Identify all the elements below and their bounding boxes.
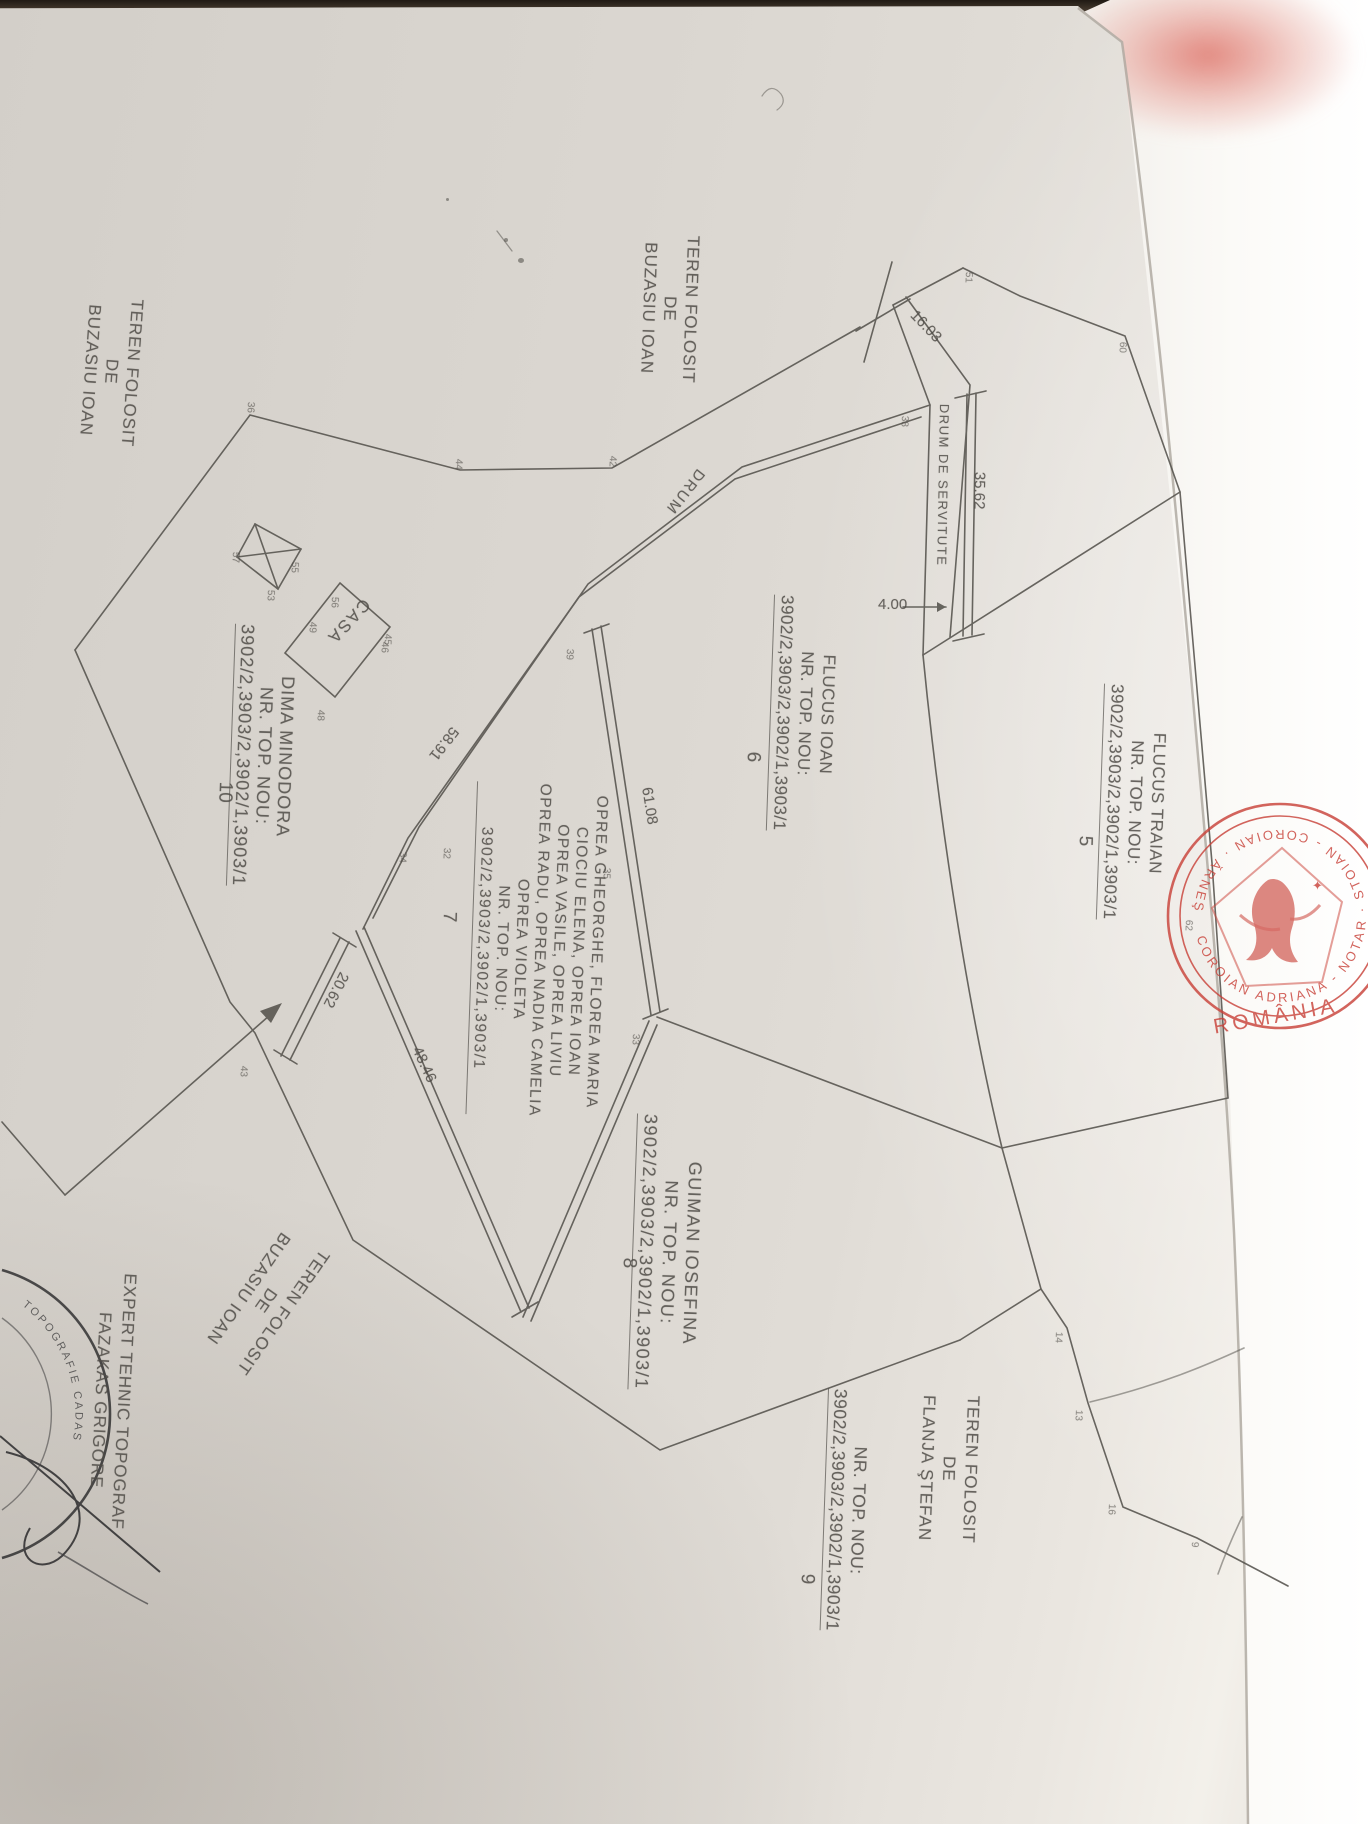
parcel-number-7: 7: [438, 911, 460, 922]
area-label-flanja: TEREN FOLOSITDEFLANJA ŞTEFAN: [913, 1394, 984, 1544]
vertex-number: 60: [1115, 342, 1128, 354]
label-line: 8: [618, 1257, 640, 1268]
road-label-drum: DRUM: [661, 465, 708, 518]
label-line: DRUM: [661, 465, 708, 518]
vertex-number: 57: [228, 552, 241, 564]
vertex-number: 9: [1187, 1542, 1200, 1548]
label-line: TEREN FOLOSIT: [957, 1395, 984, 1544]
area-label-teren-folosit-bottom: TEREN FOLOSITDEBUZASIU IOAN: [197, 1222, 334, 1379]
vertex-number: 34: [395, 852, 408, 864]
vertex-number: 55: [287, 562, 300, 574]
vertex-number: 39: [562, 649, 575, 661]
label-line: 6: [742, 751, 764, 762]
dimension-label: 20.62: [318, 968, 352, 1010]
vertex-number: 14: [1051, 1332, 1064, 1344]
vertex-number: 35: [599, 868, 612, 880]
area-label-teren-folosit-top: TEREN FOLOSITDEBUZASIU IOAN: [636, 234, 704, 384]
vertex-number: 16: [1104, 1504, 1117, 1516]
vertex-number: 13: [1071, 1410, 1084, 1422]
vertex-number: 32: [439, 848, 452, 860]
dimension-label: 16.03: [906, 307, 946, 347]
road-label-drum-servitute: DRUM DE SERVITUTE: [933, 404, 952, 567]
owner-label-guiman: GUIMAN IOSEFINANR. TOP. NOU:3902/2,3903/…: [627, 1114, 708, 1392]
vertex-number: 51: [961, 272, 974, 284]
vertex-number: 49: [305, 622, 318, 634]
surveyor-label: EXPERT TEHNIC TOPOGRAFFAZAKAS GRIGORE: [83, 1272, 142, 1531]
vertex-number: 53: [263, 590, 276, 602]
dimension-label: 4.00: [878, 596, 907, 615]
vertex-number: 48: [313, 710, 326, 722]
area-label-teren-folosit-left: TEREN FOLOSITDEBUZASIU IOAN: [75, 296, 148, 448]
dimension-label: 35.62: [969, 472, 988, 510]
label-line: TEREN FOLOSIT: [678, 235, 704, 384]
label-line: DRUM DE SERVITUTE: [933, 404, 952, 567]
vertex-number: 44: [451, 459, 464, 471]
dimension-label: 61.08: [636, 786, 660, 826]
vertex-number: 42: [605, 456, 618, 468]
parcel-ref-9-block: NR. TOP. NOU:3902/2,3903/2,3902/1,3903/1: [820, 1388, 874, 1632]
vertex-number: 38: [897, 416, 910, 428]
label-line: 5: [1074, 835, 1096, 846]
photographed-cadastral-document: TOPOGRAFIE CADAS COROIAN ADRIANA - NOTAR…: [0, 0, 1368, 1824]
dimension-label: 58.91: [424, 722, 462, 763]
parcel-number-9: 9: [796, 1573, 818, 1584]
vertex-number: 43: [236, 1066, 249, 1078]
label-line: 10: [213, 781, 236, 803]
vertex-number: 62: [1181, 920, 1194, 932]
vertex-number: 36: [243, 402, 256, 414]
parcel-number-5: 5: [1074, 835, 1096, 846]
owner-label-dima: DIMA MINODORANR. TOP. NOU:3902/2,3903/2,…: [226, 624, 300, 888]
parcel-number-10: 10: [213, 781, 236, 803]
owner-label-oprea: OPREA GHEORGHE, FLOREA MARIACIOCIU ELENA…: [465, 781, 612, 1119]
owner-label-flucus-ioan: FLUCUS IOANNR. TOP. NOU:3902/2,3903/2,39…: [766, 595, 842, 833]
vertex-number: 45: [380, 634, 393, 646]
plan-text-layer: TEREN FOLOSITDEBUZASIU IOANTEREN FOLOSIT…: [0, 0, 1368, 1824]
dimension-label: 48.46: [407, 1044, 440, 1086]
vertex-number: 33: [628, 1034, 641, 1046]
parcel-number-8: 8: [618, 1257, 640, 1268]
label-line: 7: [438, 911, 460, 922]
parcel-number-6: 6: [742, 751, 764, 762]
vertex-number: 56: [327, 597, 340, 609]
owner-label-flucus-traian: FLUCUS TRAIANNR. TOP. NOU:3902/2,3903/2,…: [1096, 684, 1172, 922]
label-line: 9: [796, 1573, 818, 1584]
